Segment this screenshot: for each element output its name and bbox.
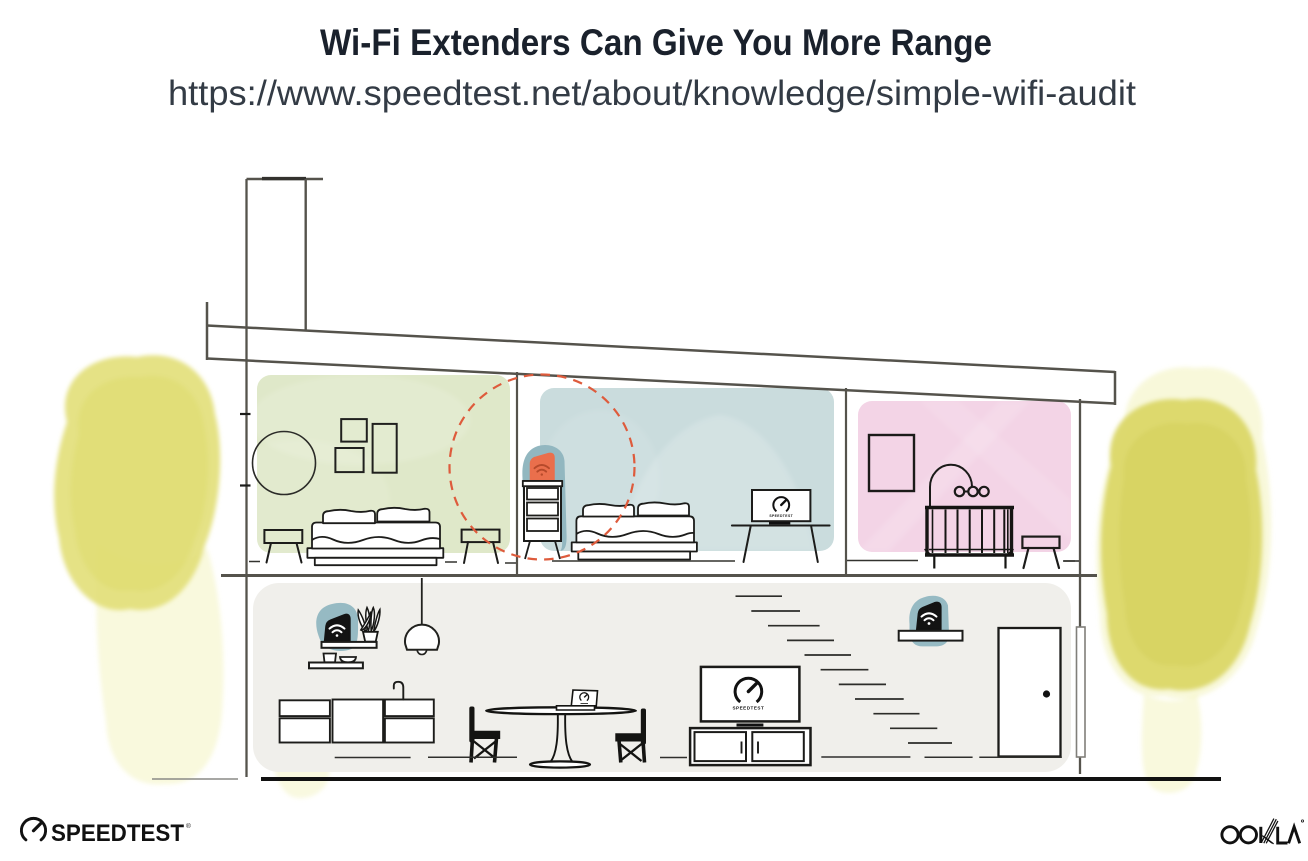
svg-text:®: ® xyxy=(186,822,191,830)
svg-text:SPEEDTEST: SPEEDTEST xyxy=(732,706,764,711)
svg-text:Wi-Fi Extenders Can Give You M: Wi-Fi Extenders Can Give You More Range xyxy=(320,22,992,63)
svg-text:SPEEDTEST: SPEEDTEST xyxy=(769,514,793,518)
svg-text:SPEEDTEST: SPEEDTEST xyxy=(51,820,184,847)
svg-text:https://www.speedtest.net/abou: https://www.speedtest.net/about/knowledg… xyxy=(168,74,1136,113)
